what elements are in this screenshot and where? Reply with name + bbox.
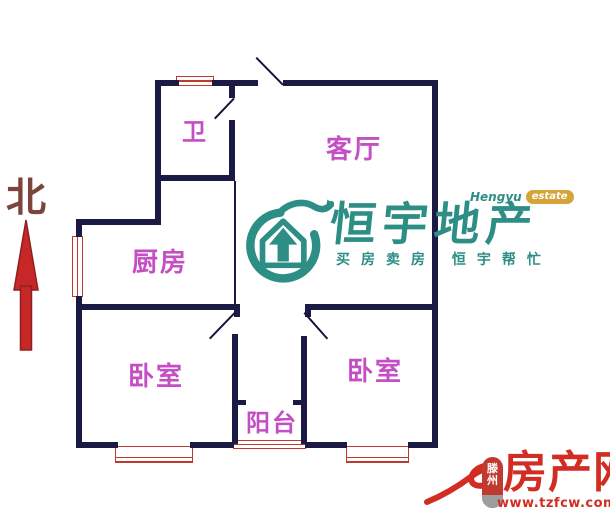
label-bedroom-right: 卧室	[347, 359, 403, 385]
brand-tagline: 买房卖房 恒宇帮忙	[336, 253, 552, 267]
site-city-text: 滕州	[487, 462, 498, 487]
wall-bathroom-right-lower	[229, 120, 235, 181]
wall-bathroom-right-upper	[229, 80, 235, 98]
kitchen-window	[72, 236, 83, 297]
wall-bottom-1	[76, 442, 118, 448]
north-arrow-icon	[7, 218, 45, 352]
bedroom-right-bay-window	[346, 446, 409, 463]
floorplan-canvas: 卫 客厅 厨房 卧室 卧室 阳台 北 Hengyu estate 恒宇地产 买房…	[0, 0, 610, 515]
partition-line	[234, 181, 236, 305]
wall-bathroom-bottom	[155, 175, 235, 181]
wall-top-mid	[212, 80, 258, 86]
wall-balcony-right	[301, 336, 307, 444]
label-bedroom-left: 卧室	[128, 364, 184, 390]
wall-middle-left-jamb	[234, 304, 240, 317]
north-label: 北	[6, 178, 46, 218]
label-bathroom: 卫	[182, 120, 208, 144]
wall-balcony-left-flange	[232, 400, 246, 405]
bathroom-door-swing	[214, 98, 235, 120]
label-living-room: 客厅	[326, 137, 382, 163]
wall-bottom-2	[190, 442, 234, 448]
bathroom-window	[176, 76, 214, 86]
hengyu-logo-icon	[238, 192, 334, 286]
wall-bottom-3	[305, 442, 347, 448]
wall-middle-right	[305, 304, 438, 310]
wall-left-upper	[76, 219, 82, 237]
wall-top-right	[283, 80, 438, 86]
site-url-text: www.tzfcw.com.cn	[497, 497, 610, 510]
balcony-window	[233, 440, 306, 449]
site-name-text: 房产网	[503, 451, 610, 495]
wall-kitchen-top	[76, 219, 161, 225]
brand-cn-text: 恒宇地产	[328, 201, 541, 247]
wall-balcony-right-flange	[293, 400, 307, 405]
wall-bathroom-left	[155, 80, 161, 225]
label-balcony: 阳台	[246, 411, 298, 435]
wall-middle-left	[76, 304, 240, 310]
bedroom-right-door-swing	[304, 312, 329, 340]
bedroom-left-bay-window	[115, 446, 193, 463]
wall-bottom-4	[408, 442, 438, 448]
wall-balcony-left	[232, 334, 238, 444]
wall-left-lower	[76, 296, 82, 448]
entrance-door-swing	[256, 57, 284, 86]
label-kitchen: 厨房	[132, 250, 188, 276]
